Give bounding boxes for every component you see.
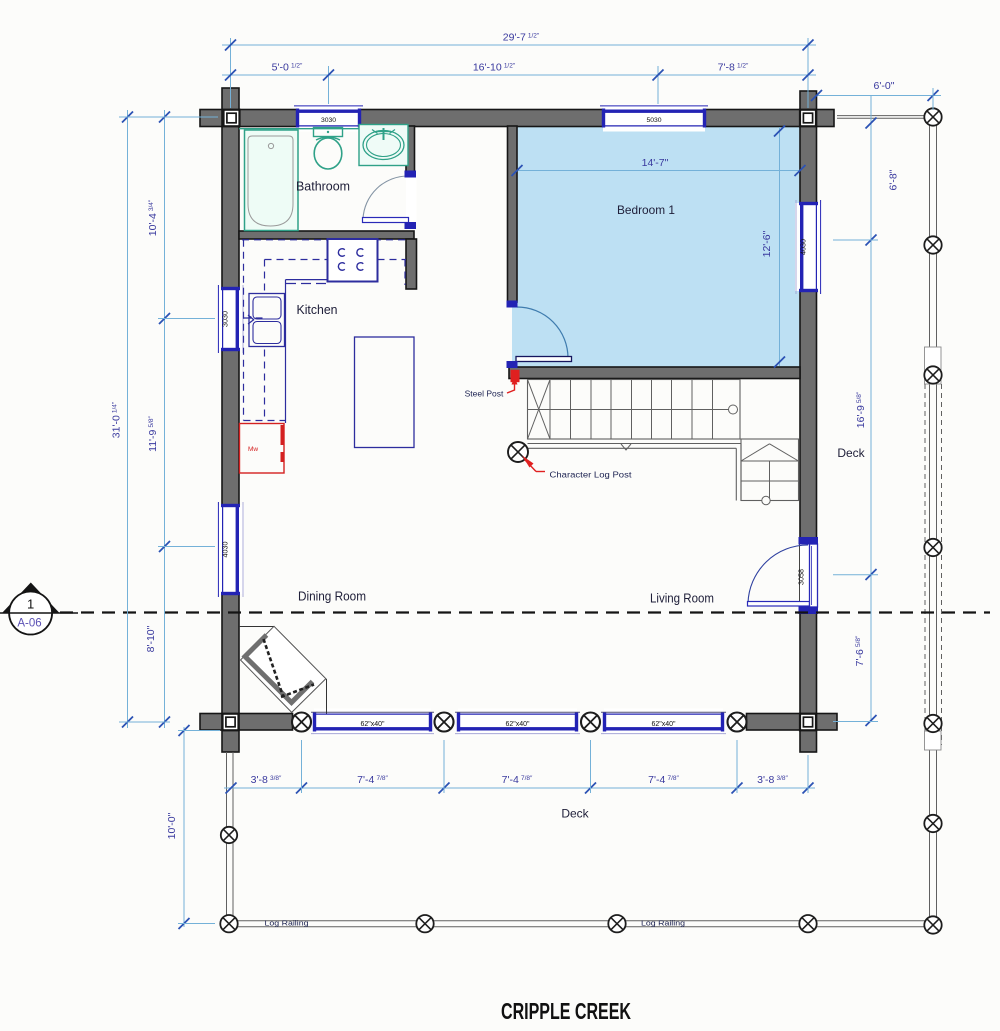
svg-text:3030: 3030 — [321, 117, 336, 124]
svg-text:4030: 4030 — [799, 239, 808, 255]
svg-text:Steel Post: Steel Post — [465, 389, 504, 399]
svg-text:10'-0": 10'-0" — [166, 812, 178, 839]
svg-text:Log Railing: Log Railing — [641, 919, 685, 928]
svg-text:Deck: Deck — [837, 446, 865, 460]
svg-text:3058: 3058 — [797, 569, 806, 585]
svg-text:62"x40": 62"x40" — [505, 721, 530, 728]
svg-text:6'-0": 6'-0" — [874, 80, 895, 92]
svg-text:4030: 4030 — [221, 542, 230, 558]
svg-text:Log Railing: Log Railing — [265, 919, 309, 928]
svg-text:62"x40": 62"x40" — [651, 721, 676, 728]
svg-text:6'-8": 6'-8" — [888, 169, 900, 190]
svg-text:Living Room: Living Room — [650, 592, 714, 606]
svg-text:Bedroom 1: Bedroom 1 — [617, 203, 675, 217]
svg-text:1: 1 — [27, 597, 34, 612]
svg-text:Character Log Post: Character Log Post — [550, 470, 633, 480]
svg-text:14'-7": 14'-7" — [642, 157, 669, 169]
svg-text:Deck: Deck — [561, 807, 589, 821]
svg-text:3030: 3030 — [221, 311, 230, 327]
svg-text:CRIPPLE CREEK: CRIPPLE CREEK — [501, 998, 631, 1024]
svg-text:62"x40": 62"x40" — [360, 721, 385, 728]
svg-text:Mw: Mw — [248, 446, 258, 453]
svg-text:Dining Room: Dining Room — [298, 590, 366, 604]
svg-text:Bathroom: Bathroom — [296, 180, 350, 194]
svg-text:8'-10": 8'-10" — [145, 625, 157, 652]
svg-text:5030: 5030 — [646, 117, 661, 124]
svg-text:12'-6": 12'-6" — [761, 230, 773, 257]
svg-text:Kitchen: Kitchen — [297, 303, 338, 317]
svg-text:A-06: A-06 — [17, 618, 41, 630]
